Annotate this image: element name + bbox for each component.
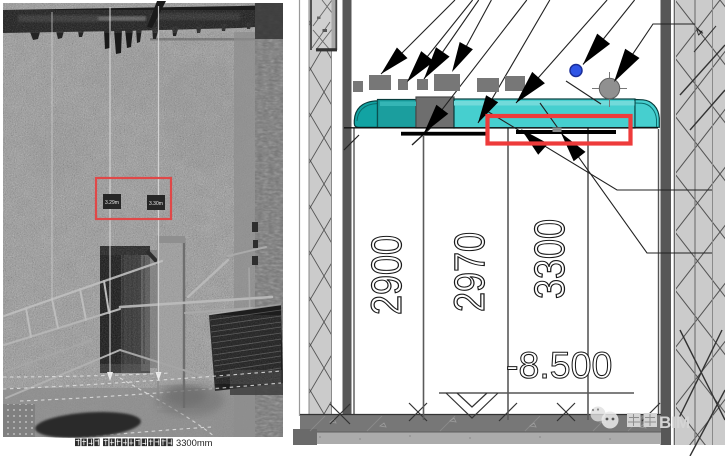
svg-text:2900: 2900 — [363, 235, 410, 315]
svg-text:3300: 3300 — [526, 219, 573, 299]
svg-text:3.30m: 3.30m — [149, 201, 163, 207]
svg-text:BIM: BIM — [659, 413, 690, 432]
svg-text:2970: 2970 — [446, 232, 493, 312]
svg-text:3300mm: 3300mm — [176, 437, 213, 448]
svg-text:3.29m: 3.29m — [105, 200, 119, 206]
svg-text:-8.500: -8.500 — [506, 344, 612, 386]
